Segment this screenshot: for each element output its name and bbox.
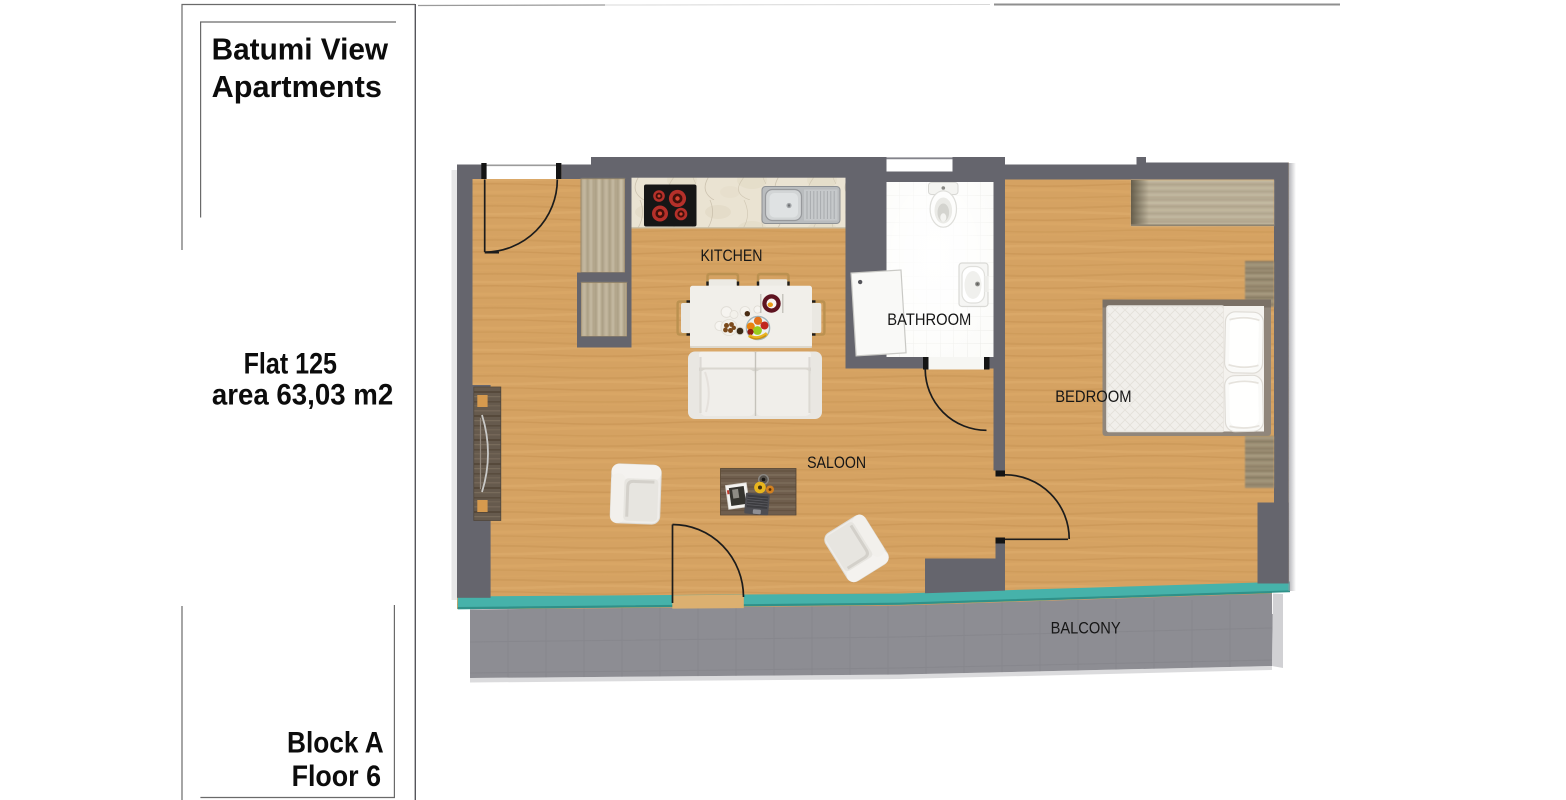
svg-text:BALCONY: BALCONY — [1051, 619, 1121, 637]
svg-text:Batumi View: Batumi View — [212, 31, 389, 66]
svg-text:Apartments: Apartments — [212, 69, 382, 104]
svg-text:KITCHEN: KITCHEN — [701, 247, 763, 265]
svg-text:Floor 6: Floor 6 — [292, 760, 381, 793]
svg-text:area 63,03 m2: area 63,03 m2 — [212, 379, 393, 412]
svg-text:BATHROOM: BATHROOM — [887, 311, 971, 329]
svg-text:Flat 125: Flat 125 — [244, 348, 337, 381]
svg-text:Block A: Block A — [287, 727, 384, 760]
svg-text:SALOON: SALOON — [807, 454, 866, 472]
svg-text:BEDROOM: BEDROOM — [1055, 388, 1131, 406]
